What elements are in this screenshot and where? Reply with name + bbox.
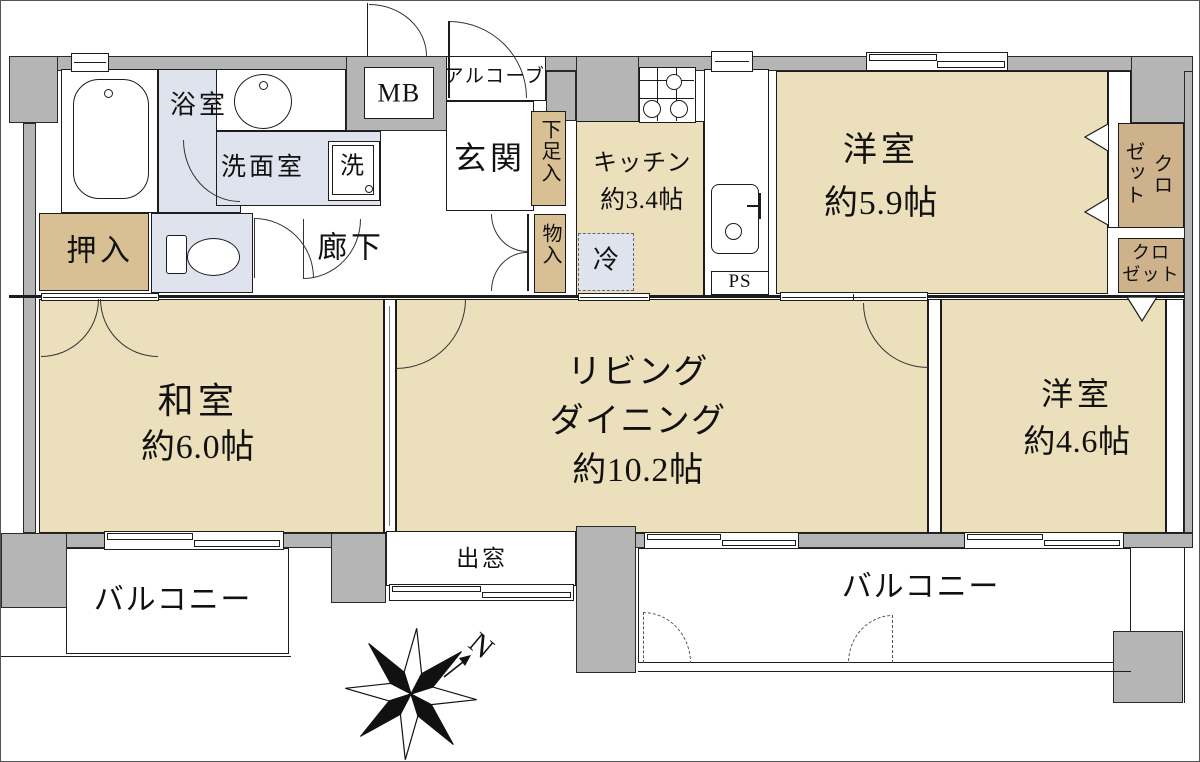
floor-plan: N 浴室 洗面室 洗 MB アルコーブ 玄関 下足入 物入 押入 廊下 キッチン…	[0, 0, 1200, 762]
label-entrance: 玄関	[454, 142, 526, 176]
stove-burner	[643, 100, 661, 118]
partition-slide-line	[389, 306, 390, 526]
washbasin-icon	[234, 74, 292, 129]
pillar-bay-left	[331, 533, 386, 603]
pillar-bay-right	[576, 526, 636, 673]
label-closet-upper-1: クロ	[1151, 153, 1171, 196]
label-balcony-right: バルコニー	[842, 571, 1000, 603]
window-pane	[392, 586, 481, 592]
track-line	[43, 297, 157, 298]
toilet-tank	[166, 235, 187, 274]
window-washitsu-balcony	[104, 531, 284, 550]
pillar-bottom-right	[1113, 631, 1183, 703]
window-bay	[389, 584, 574, 601]
partition-washitsu-living	[384, 299, 396, 533]
building-edge-line	[1184, 548, 1185, 703]
label-bedroom59: 洋室	[843, 133, 919, 169]
label-closet-upper-2: ゼット	[1123, 141, 1143, 206]
label-shoe-box: 下足入	[539, 119, 559, 184]
wall-topleft-block	[9, 56, 58, 123]
stove-burner	[670, 100, 688, 118]
label-oshiire: 押入	[66, 235, 133, 267]
stove-burner	[666, 74, 682, 90]
label-living-2: ダイニング	[550, 404, 727, 440]
label-washer: 洗	[340, 154, 364, 179]
label-living-size: 約10.2帖	[572, 453, 704, 489]
door-arc-hall-double-upper	[491, 214, 527, 252]
stove-grate-line	[640, 98, 694, 99]
sink-drain	[725, 223, 742, 240]
track-line	[580, 297, 648, 298]
washbasin-faucet	[259, 81, 268, 90]
door-leaf	[527, 214, 529, 291]
kitchen-counter	[704, 69, 769, 296]
label-fridge: 冷	[593, 246, 619, 273]
balcony-outer-line	[638, 671, 1131, 672]
label-hallway: 廊下	[317, 232, 384, 264]
label-bath: 浴室	[170, 91, 228, 118]
label-hall-storage: 物入	[540, 223, 560, 266]
door-leaf	[367, 3, 368, 56]
north-label: N	[462, 626, 500, 665]
door-arc-hall-double-lower	[491, 252, 527, 291]
sliding-door-track	[780, 292, 928, 301]
wall-kitchen-top	[576, 56, 639, 123]
label-kitchen: キッチン	[593, 151, 691, 176]
sliding-door-track	[578, 293, 650, 301]
label-bay-window: 出窓	[456, 547, 508, 571]
bathtub-icon	[73, 79, 149, 199]
window-glass-line	[74, 62, 106, 63]
label-living-1: リビング	[567, 355, 708, 391]
north-arrow-shaft	[444, 658, 468, 677]
label-balcony-left: バルコニー	[94, 584, 252, 616]
window-pane	[967, 534, 1043, 540]
north-arrow-head	[459, 655, 471, 666]
label-bedroom46: 洋室	[1041, 378, 1113, 412]
track-line	[782, 297, 926, 298]
pillar-bottom-left	[1, 533, 67, 608]
balcony-outer-line	[1, 656, 291, 657]
window	[711, 51, 753, 72]
bathtub-drain	[104, 89, 113, 98]
stove-icon	[639, 67, 696, 123]
toilet-bowl-icon	[187, 238, 240, 276]
label-meter-box: MB	[377, 79, 420, 106]
compass-rose-icon	[345, 628, 476, 759]
wall-left-strip	[23, 123, 36, 533]
track-tick	[853, 294, 854, 301]
label-bedroom59-size: 約5.9帖	[824, 186, 938, 222]
label-washitsu-size: 約6.0帖	[141, 430, 255, 466]
window-pane	[194, 540, 280, 547]
faucet-icon	[759, 193, 761, 219]
window-living-balcony	[644, 532, 799, 549]
wall-cavity-right	[1166, 299, 1184, 533]
room-bedroom-59	[776, 71, 1108, 294]
kitchen-sink-icon	[711, 184, 759, 254]
label-washroom: 洗面室	[221, 155, 305, 181]
wall-right-strip	[1184, 71, 1193, 533]
label-closet-lower-2: ゼット	[1122, 266, 1179, 285]
window-pane	[107, 533, 193, 540]
label-kitchen-size: 約3.4帖	[600, 188, 684, 214]
window	[71, 53, 109, 72]
label-alcove: アルコーブ	[445, 67, 546, 87]
window-pane	[1044, 540, 1120, 546]
label-washitsu: 和室	[158, 383, 239, 421]
window-bedroom59	[866, 52, 1008, 71]
window-glass-line	[715, 61, 749, 62]
door-arc-mb	[369, 4, 427, 56]
label-pipe-space: PS	[728, 272, 751, 292]
partition-living-bedroom46	[928, 299, 941, 533]
window-pane	[937, 61, 1005, 68]
window-pane	[482, 592, 571, 598]
washing-machine-drain	[365, 185, 373, 193]
label-bedroom46-size: 約4.6帖	[1023, 425, 1130, 459]
window-bedroom46-balcony	[964, 532, 1124, 549]
label-closet-lower-1: クロ	[1132, 244, 1170, 263]
window-pane	[869, 54, 937, 61]
window-pane	[722, 540, 796, 546]
window-pane	[647, 534, 721, 540]
room-bedroom-46	[941, 299, 1166, 533]
